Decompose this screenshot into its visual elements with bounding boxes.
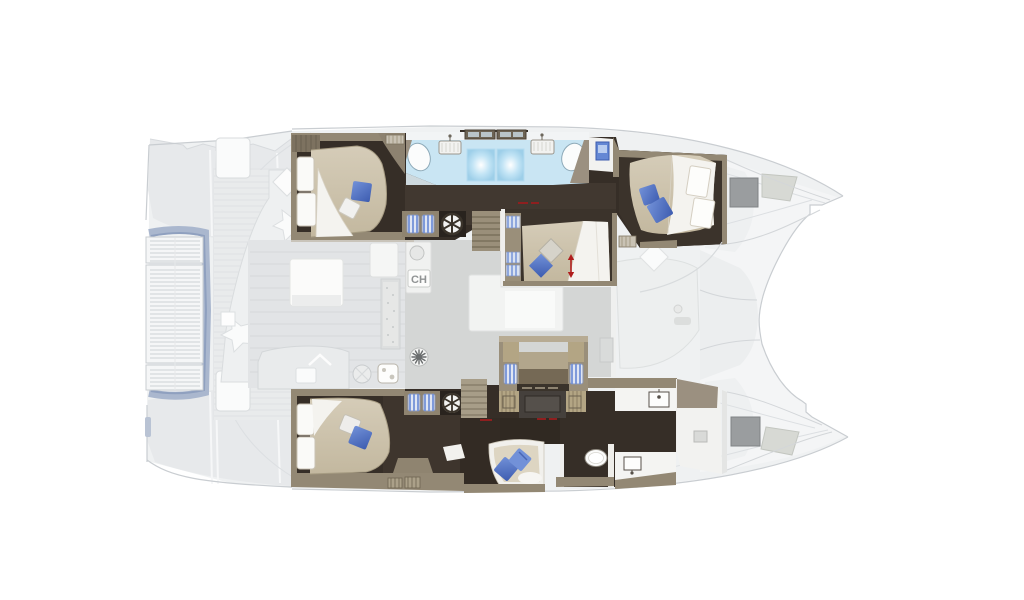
svg-text:CH: CH <box>411 274 427 286</box>
